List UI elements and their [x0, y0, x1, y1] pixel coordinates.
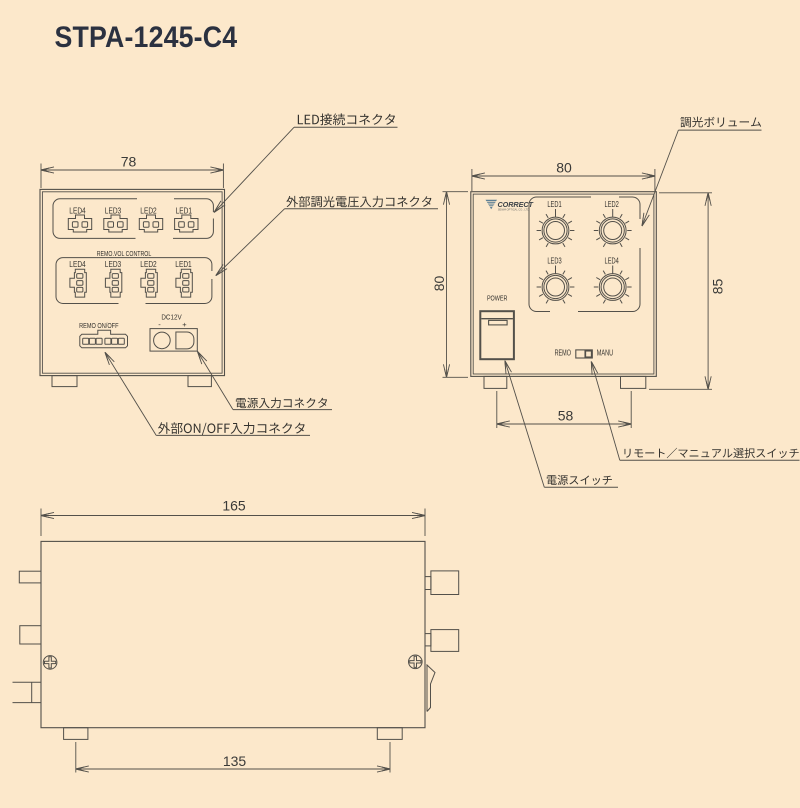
svg-text:LED1: LED1	[176, 207, 193, 216]
svg-text:LED2: LED2	[605, 200, 620, 209]
svg-text:LED3: LED3	[105, 260, 122, 269]
svg-text:REMO ON/OFF: REMO ON/OFF	[79, 321, 119, 330]
svg-text:+: +	[182, 320, 187, 329]
svg-text:LED4: LED4	[69, 207, 86, 216]
svg-text:135: 135	[223, 753, 247, 769]
svg-text:REMO: REMO	[555, 349, 571, 358]
svg-text:DC12V: DC12V	[161, 312, 182, 321]
svg-text:LED3: LED3	[105, 207, 122, 216]
svg-text:STPA-1245-C4: STPA-1245-C4	[55, 21, 238, 53]
svg-text:MANU: MANU	[597, 349, 614, 358]
svg-text:LED4: LED4	[605, 257, 620, 266]
svg-text:LED2: LED2	[140, 260, 157, 269]
svg-text:80: 80	[431, 276, 447, 292]
svg-text:165: 165	[222, 498, 246, 514]
svg-text:LED2: LED2	[140, 207, 157, 216]
svg-text:LED1: LED1	[175, 260, 192, 269]
svg-text:LED1: LED1	[547, 200, 562, 209]
svg-text:SEIWA OPTICAL CO., LTD: SEIWA OPTICAL CO., LTD	[498, 207, 529, 211]
svg-text:80: 80	[556, 160, 572, 176]
svg-text:POWER: POWER	[487, 293, 508, 302]
svg-text:85: 85	[710, 279, 726, 295]
svg-text:58: 58	[558, 408, 574, 424]
svg-text:78: 78	[121, 154, 137, 170]
svg-text:LED4: LED4	[69, 260, 86, 269]
svg-text:LED3: LED3	[547, 257, 562, 266]
